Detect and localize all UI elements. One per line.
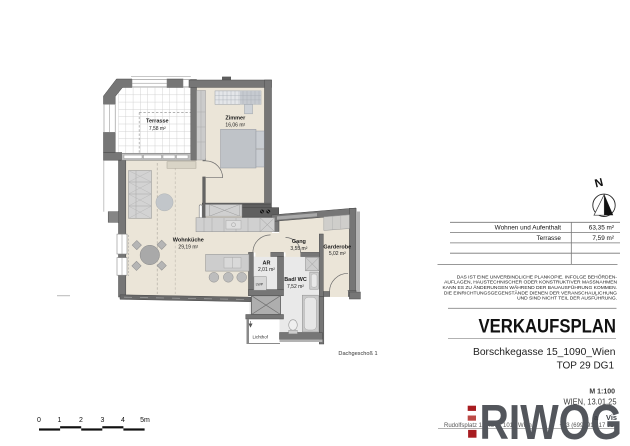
- svg-text:Dachgeschoß 1: Dachgeschoß 1: [338, 351, 377, 357]
- svg-text:7,59 m²: 7,59 m²: [592, 235, 614, 242]
- svg-text:Wohnen und Aufenthalt: Wohnen und Aufenthalt: [495, 225, 562, 232]
- svg-text:RIWOG: RIWOG: [480, 395, 623, 446]
- svg-text:7,58 m²: 7,58 m²: [149, 126, 166, 132]
- svg-text:AUFLAGEN, HAUSTECHNISCHER ODER: AUFLAGEN, HAUSTECHNISCHER ODER KONSTRUKT…: [444, 280, 617, 286]
- svg-text:Bad/ WC: Bad/ WC: [284, 277, 307, 283]
- svg-text:Vis: Vis: [606, 413, 617, 422]
- svg-text:KANN ES ZU ÄNDERUNGEN WÄHREND: KANN ES ZU ÄNDERUNGEN WÄHREND DER BAUAUS…: [443, 284, 617, 291]
- svg-text:63,35 m²: 63,35 m²: [589, 225, 614, 232]
- svg-text:LWP: LWP: [256, 283, 264, 287]
- svg-text:VERKAUFSPLAN: VERKAUFSPLAN: [479, 316, 617, 338]
- svg-text:2: 2: [79, 417, 83, 424]
- svg-text:Garderobe: Garderobe: [323, 244, 351, 250]
- svg-text:7,52 m²: 7,52 m²: [287, 284, 304, 290]
- svg-text:4: 4: [121, 417, 125, 424]
- svg-text:Wohnküche: Wohnküche: [173, 237, 204, 243]
- svg-text:Lichthof: Lichthof: [253, 335, 269, 340]
- svg-text:3,55 m²: 3,55 m²: [290, 246, 307, 252]
- svg-text:AR: AR: [263, 260, 271, 266]
- svg-text:29,19 m²: 29,19 m²: [178, 245, 198, 251]
- svg-text:0: 0: [37, 417, 41, 424]
- svg-text:5,02 m²: 5,02 m²: [329, 251, 346, 257]
- svg-text:Borschkegasse 15_1090_Wien: Borschkegasse 15_1090_Wien: [473, 347, 616, 358]
- svg-text:Gang: Gang: [292, 239, 306, 245]
- svg-text:Terrasse: Terrasse: [146, 119, 169, 125]
- svg-text:Terrasse: Terrasse: [536, 235, 561, 242]
- svg-text:2,01 m²: 2,01 m²: [258, 267, 275, 273]
- svg-text:5m: 5m: [140, 417, 150, 424]
- svg-text:UND SIND NICHT TEIL DER AUSFÜH: UND SIND NICHT TEIL DER AUSFÜHRUNG.: [517, 295, 617, 302]
- svg-text:TOP 29 DG1: TOP 29 DG1: [557, 361, 615, 372]
- svg-text:3: 3: [101, 417, 105, 424]
- svg-text:DIE EINRICHTUNGSGEGENSTÄNDE DI: DIE EINRICHTUNGSGEGENSTÄNDE DIENEN DER V…: [444, 289, 617, 296]
- svg-text:16,06 m²: 16,06 m²: [225, 122, 245, 128]
- svg-text:DAS IST EINE UNVERBINDLICHE PL: DAS IST EINE UNVERBINDLICHE PLANKOPIE. I…: [457, 273, 618, 280]
- svg-text:1: 1: [58, 417, 62, 424]
- svg-text:Zimmer: Zimmer: [225, 115, 246, 121]
